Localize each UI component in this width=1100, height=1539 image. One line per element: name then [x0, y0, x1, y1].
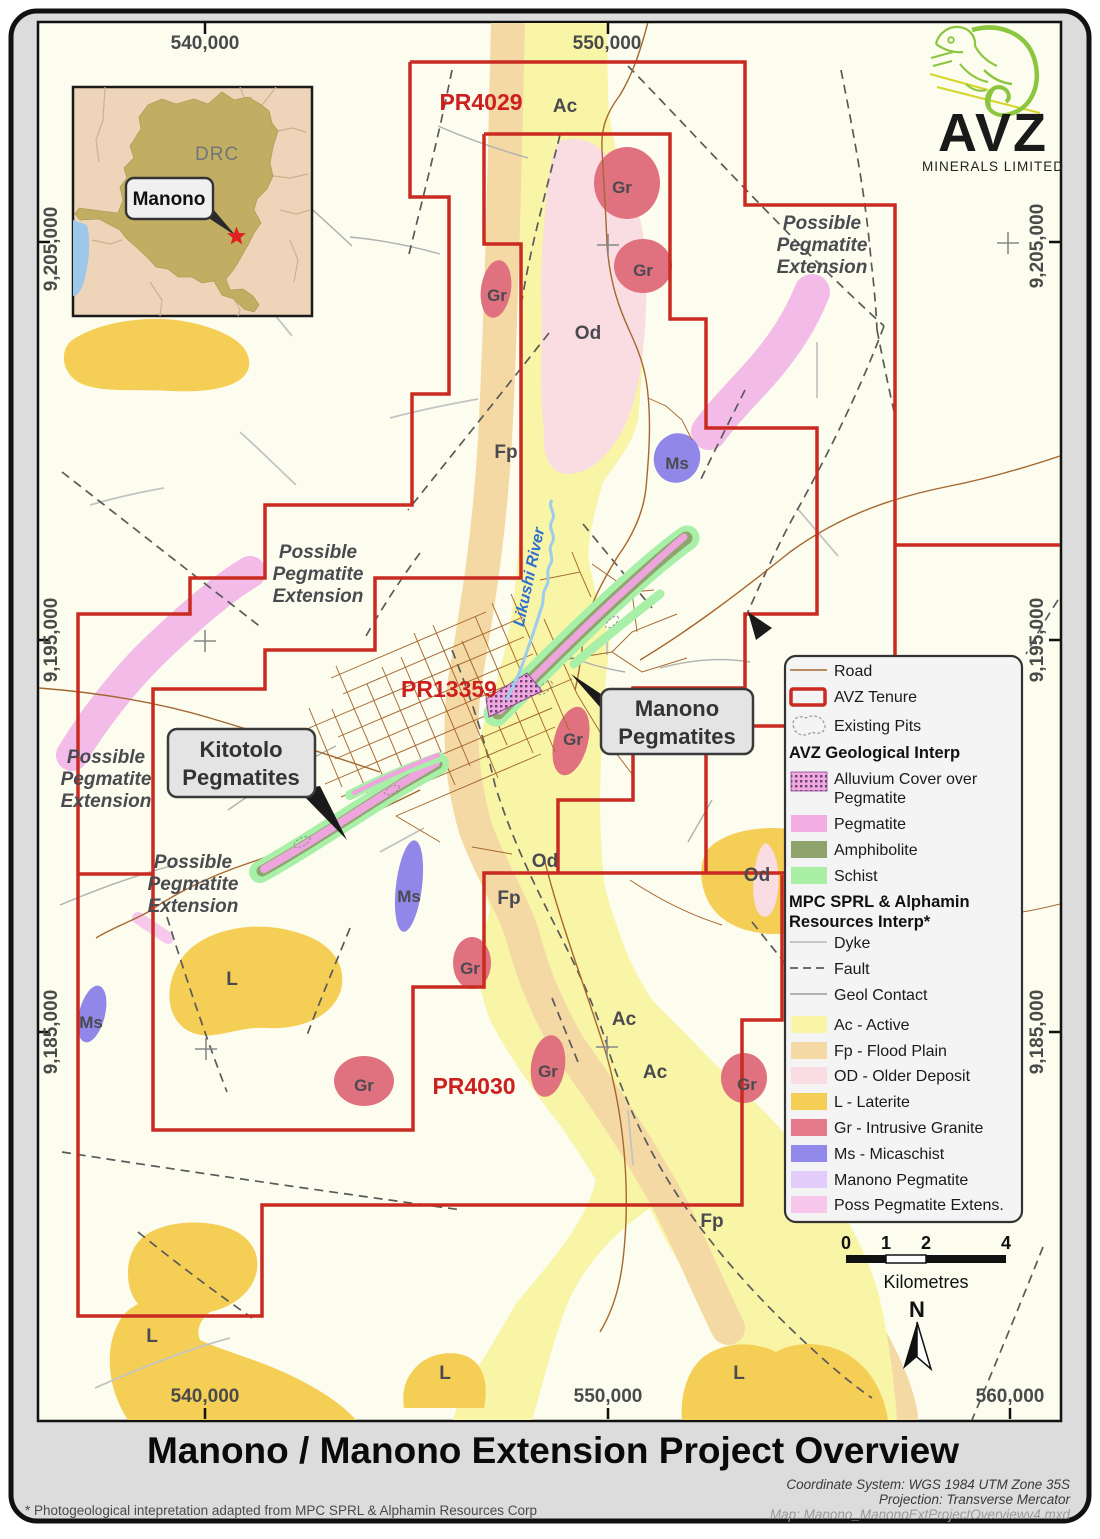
svg-text:Schist: Schist — [834, 868, 878, 885]
svg-text:Possible: Possible — [154, 852, 233, 873]
svg-text:Od: Od — [575, 323, 601, 344]
svg-text:Coordinate System: WGS 1984 UT: Coordinate System: WGS 1984 UTM Zone 35S — [786, 1477, 1070, 1492]
svg-text:Pegmatite: Pegmatite — [834, 790, 906, 807]
svg-text:Possible: Possible — [67, 747, 146, 768]
svg-text:AVZ Geological Interp: AVZ Geological Interp — [789, 744, 960, 762]
svg-text:Gr: Gr — [538, 1062, 558, 1081]
svg-text:Fault: Fault — [834, 961, 870, 978]
svg-text:Amphibolite: Amphibolite — [834, 842, 918, 859]
svg-text:N: N — [909, 1297, 925, 1322]
svg-text:Resources Interp*: Resources Interp* — [789, 913, 931, 931]
svg-text:Existing Pits: Existing Pits — [834, 718, 921, 735]
svg-text:Ms: Ms — [79, 1013, 103, 1032]
svg-text:Ac - Active: Ac - Active — [834, 1017, 910, 1034]
svg-text:MPC SPRL & Alphamin: MPC SPRL & Alphamin — [789, 893, 970, 911]
svg-text:L - Laterite: L - Laterite — [834, 1094, 910, 1111]
svg-text:Ac: Ac — [553, 96, 578, 117]
svg-text:L: L — [146, 1326, 158, 1347]
svg-text:Poss Pegmatite Extens.: Poss Pegmatite Extens. — [834, 1197, 1004, 1214]
svg-text:L: L — [733, 1363, 745, 1384]
svg-text:PR13359: PR13359 — [401, 676, 497, 702]
svg-text:Od: Od — [744, 865, 770, 886]
svg-text:Alluvium Cover over: Alluvium Cover over — [834, 771, 978, 788]
svg-text:Pegmatites: Pegmatites — [618, 724, 735, 749]
svg-text:4: 4 — [1001, 1233, 1011, 1253]
svg-text:9,195,000: 9,195,000 — [1027, 598, 1048, 683]
svg-text:Gr - Intrusive Granite: Gr - Intrusive Granite — [834, 1120, 983, 1137]
svg-text:Manono Pegmatite: Manono Pegmatite — [834, 1172, 968, 1189]
svg-text:Manono: Manono — [635, 696, 719, 721]
svg-text:Gr: Gr — [563, 730, 583, 749]
svg-text:Ms: Ms — [665, 454, 689, 473]
svg-text:Pegmatite: Pegmatite — [834, 816, 906, 833]
svg-text:Road: Road — [834, 663, 872, 680]
svg-text:550,000: 550,000 — [573, 33, 642, 54]
svg-text:0: 0 — [841, 1233, 851, 1253]
svg-text:Manono / Manono Extension Proj: Manono / Manono Extension Project Overvi… — [147, 1430, 959, 1471]
svg-text:Kitotolo: Kitotolo — [199, 737, 282, 762]
svg-text:Manono: Manono — [133, 189, 206, 210]
svg-text:Extension: Extension — [273, 586, 364, 607]
svg-text:PR4030: PR4030 — [432, 1073, 515, 1099]
svg-text:Geol Contact: Geol Contact — [834, 987, 928, 1004]
svg-text:Dyke: Dyke — [834, 935, 871, 952]
svg-text:Fp - Flood Plain: Fp - Flood Plain — [834, 1043, 947, 1060]
svg-text:Fp: Fp — [494, 442, 517, 463]
svg-text:9,205,000: 9,205,000 — [41, 207, 62, 292]
svg-text:Gr: Gr — [612, 178, 632, 197]
svg-text:OD - Older Deposit: OD - Older Deposit — [834, 1068, 971, 1085]
svg-text:9,185,000: 9,185,000 — [41, 990, 62, 1075]
svg-text:Pegmatites: Pegmatites — [182, 765, 299, 790]
svg-text:Projection: Transverse Mercato: Projection: Transverse Mercator — [879, 1492, 1071, 1507]
svg-text:AVZ: AVZ — [938, 103, 1048, 163]
svg-text:9,185,000: 9,185,000 — [1027, 990, 1048, 1075]
svg-text:Possible: Possible — [279, 542, 358, 563]
svg-text:540,000: 540,000 — [171, 1386, 240, 1407]
svg-text:Extension: Extension — [777, 257, 868, 278]
svg-text:Extension: Extension — [61, 791, 152, 812]
svg-text:Ac: Ac — [643, 1062, 668, 1083]
svg-text:Extension: Extension — [148, 896, 239, 917]
svg-text:Fp: Fp — [497, 888, 520, 909]
svg-text:Pegmatite: Pegmatite — [61, 769, 152, 790]
svg-text:L: L — [226, 969, 238, 990]
svg-text:Pegmatite: Pegmatite — [777, 235, 868, 256]
svg-text:9,205,000: 9,205,000 — [1027, 204, 1048, 289]
svg-text:PR4029: PR4029 — [439, 89, 522, 115]
svg-text:Od: Od — [532, 851, 558, 872]
svg-text:Gr: Gr — [737, 1075, 757, 1094]
svg-text:Ms - Micaschist: Ms - Micaschist — [834, 1146, 945, 1163]
svg-text:1: 1 — [881, 1233, 891, 1253]
svg-text:Map: Manono_ManonoExtProjectOv: Map: Manono_ManonoExtProjectOverviewv4.m… — [770, 1507, 1071, 1522]
svg-text:Gr: Gr — [460, 959, 480, 978]
svg-text:Kilometres: Kilometres — [883, 1272, 968, 1292]
svg-text:DRC: DRC — [195, 144, 239, 165]
svg-text:540,000: 540,000 — [171, 33, 240, 54]
svg-text:Pegmatite: Pegmatite — [148, 874, 239, 895]
svg-text:2: 2 — [921, 1233, 931, 1253]
svg-text:9,195,000: 9,195,000 — [41, 598, 62, 683]
svg-text:Fp: Fp — [700, 1211, 723, 1232]
svg-text:560,000: 560,000 — [976, 1386, 1045, 1407]
svg-text:Ac: Ac — [612, 1009, 637, 1030]
svg-text:Gr: Gr — [633, 261, 653, 280]
svg-text:Ms: Ms — [397, 887, 421, 906]
svg-text:Gr: Gr — [487, 286, 507, 305]
svg-text:Pegmatite: Pegmatite — [273, 564, 364, 585]
svg-text:Gr: Gr — [354, 1076, 374, 1095]
svg-text:* Photogeological intepretatio: * Photogeological intepretation adapted … — [25, 1503, 537, 1518]
svg-text:Possible: Possible — [783, 213, 862, 234]
svg-text:AVZ Tenure: AVZ Tenure — [834, 689, 917, 706]
svg-text:L: L — [439, 1363, 451, 1384]
svg-text:MINERALS LIMITED: MINERALS LIMITED — [922, 159, 1064, 174]
svg-text:550,000: 550,000 — [574, 1386, 643, 1407]
